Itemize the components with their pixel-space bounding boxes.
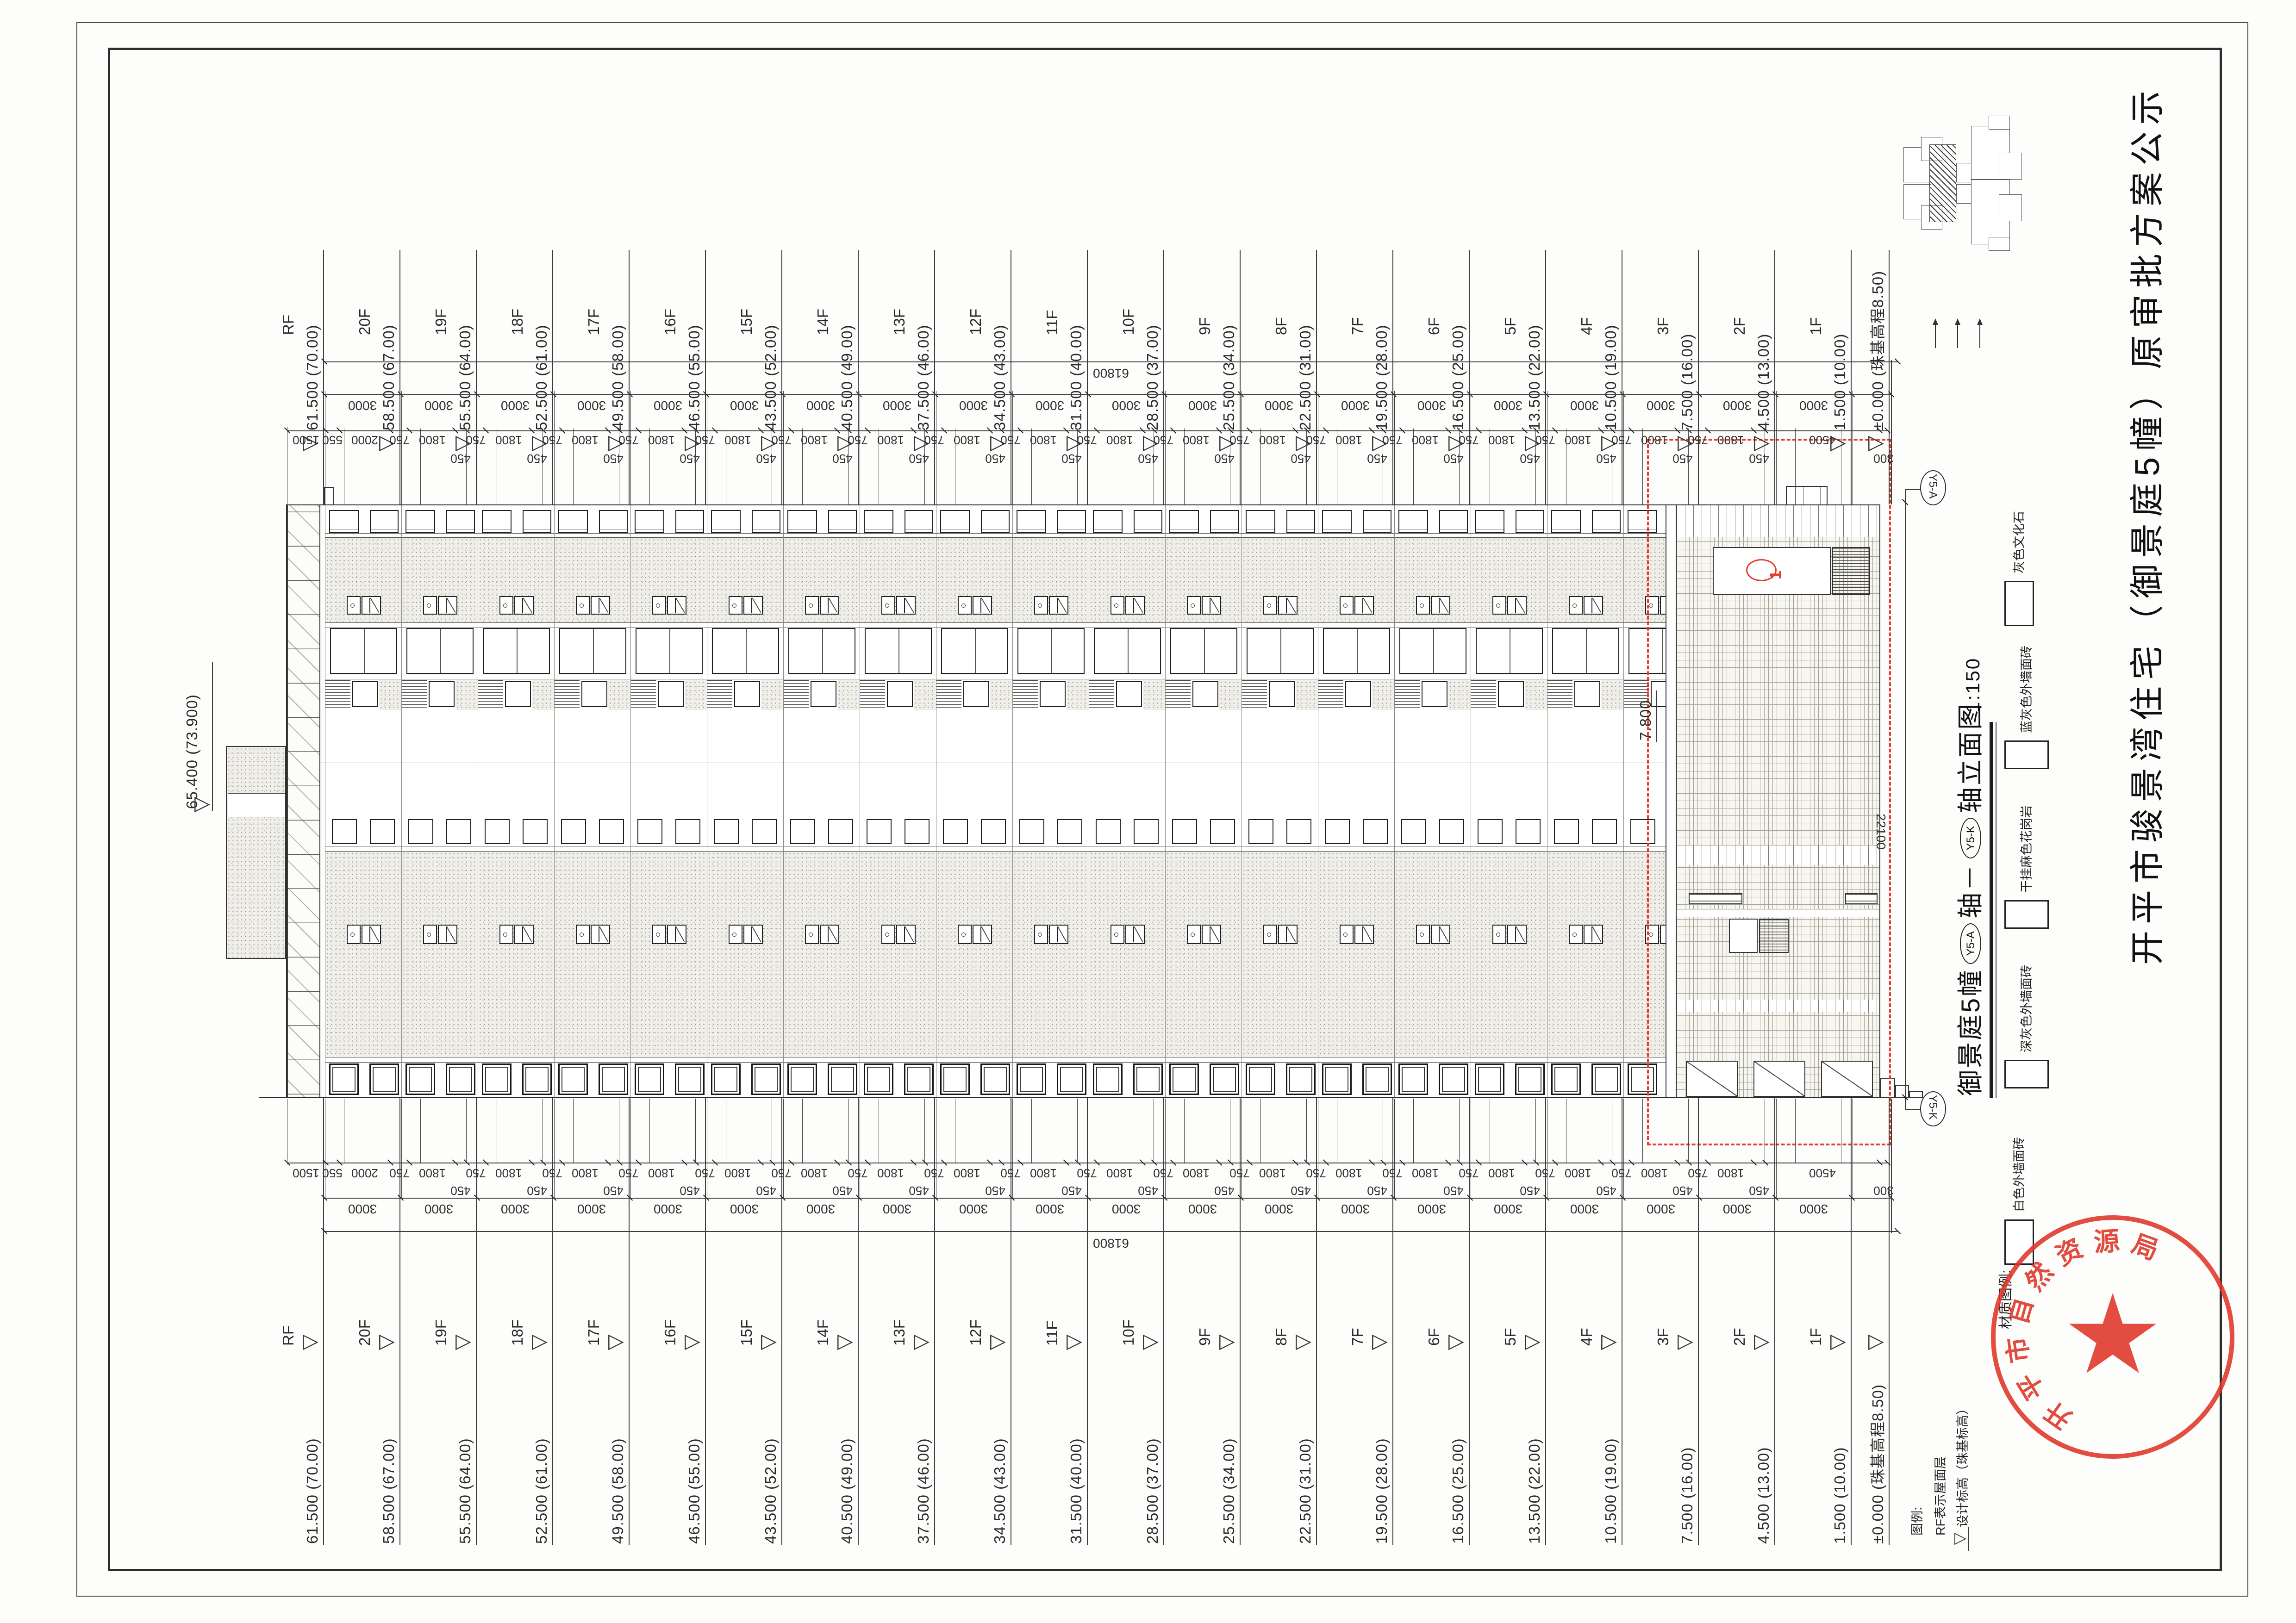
legend-item-label: 干挂麻色花岗岩 bbox=[2020, 805, 2033, 893]
level-triangle-icon: ▷ bbox=[1525, 1331, 1541, 1351]
dim-line bbox=[287, 1163, 1887, 1163]
arrow-shaft bbox=[1935, 324, 1936, 348]
arrow-shaft bbox=[1957, 324, 1958, 348]
dim-ext-line bbox=[1853, 1099, 1853, 1199]
level-elevation-label: 10.500 (19.00) bbox=[1603, 1438, 1619, 1544]
level-triangle-icon: ▷ bbox=[1868, 432, 1884, 453]
dim-text: 300 bbox=[1856, 453, 1911, 465]
dim-ext-line bbox=[1242, 391, 1242, 504]
level-leader-line bbox=[1469, 1098, 1470, 1545]
floor-name-label: 19F bbox=[433, 309, 449, 335]
level-elevation-label: 1.500 (10.00) bbox=[1832, 1447, 1848, 1544]
legend-item-label: 灰色文化石 bbox=[2013, 511, 2026, 573]
dim-ext-line bbox=[1184, 1099, 1185, 1163]
level-triangle-icon: ▷ bbox=[1954, 1530, 1966, 1546]
level-elevation-label: 46.500 (55.00) bbox=[686, 324, 703, 430]
dim-ext-line bbox=[924, 1099, 925, 1163]
level-triangle-icon: ▷ bbox=[1830, 1331, 1846, 1351]
dim-ext-line bbox=[1242, 1099, 1242, 1199]
dim-text: 3000 bbox=[1557, 1202, 1612, 1215]
legend-swatch-hlines bbox=[2004, 900, 2049, 929]
dim-text: 450 bbox=[1273, 1185, 1329, 1197]
level-elevation-label: 43.500 (52.00) bbox=[763, 324, 779, 430]
dim-ext-line bbox=[1623, 1099, 1624, 1199]
floor-name-label: 1F bbox=[1808, 317, 1824, 335]
dim-text: 450 bbox=[1502, 1185, 1558, 1197]
dim-text: 450 bbox=[1044, 453, 1099, 465]
axis-bubble-inline: Y5-K bbox=[1960, 818, 1981, 858]
floor-name-label: 2F bbox=[1732, 317, 1748, 335]
level-triangle-icon: ▷ bbox=[1143, 1331, 1159, 1351]
floor-name-label: 3F bbox=[1655, 1328, 1672, 1346]
floor-name-label: 18F bbox=[510, 1319, 526, 1346]
level-triangle-icon: ▷ bbox=[837, 1331, 853, 1351]
dim-text: 450 bbox=[815, 1185, 870, 1197]
dim-line bbox=[324, 1231, 1897, 1232]
level-elevation-label: 40.500 (49.00) bbox=[839, 1438, 855, 1544]
level-leader-line bbox=[1469, 250, 1470, 504]
dim-text: 1800 bbox=[1703, 1167, 1759, 1179]
level-elevation-label: 13.500 (22.00) bbox=[1527, 1438, 1543, 1544]
roof-machine-room bbox=[226, 746, 286, 959]
dim-ext-line bbox=[344, 1099, 344, 1163]
dim-text: 3000 bbox=[487, 1202, 543, 1215]
dim-text: 450 bbox=[1349, 1185, 1405, 1197]
level-elevation-label: 22.500 (31.00) bbox=[1298, 1438, 1314, 1544]
level-elevation-label: 40.500 (49.00) bbox=[839, 324, 855, 430]
dim-text: 450 bbox=[509, 1185, 565, 1197]
level-elevation-label: 52.500 (61.00) bbox=[534, 1438, 550, 1544]
dim-ext-line bbox=[1108, 429, 1108, 504]
level-leader-line bbox=[705, 1098, 706, 1545]
title-underline-thick bbox=[1990, 722, 1993, 1098]
page-title: 开平市骏景湾住宅（御景庭5幢）原审批方案公示 bbox=[2129, 84, 2165, 965]
dim-text: 450 bbox=[1426, 1185, 1481, 1197]
dim-ext-line bbox=[1413, 429, 1414, 504]
legend-item-label: 深灰色外墙面砖 bbox=[2020, 965, 2033, 1052]
dim-ext-line bbox=[1471, 391, 1471, 504]
floor-name-label: 17F bbox=[586, 309, 602, 335]
dim-ext-line bbox=[344, 429, 344, 504]
dim-text: 3000 bbox=[1098, 1202, 1154, 1215]
dim-text: 450 bbox=[1426, 453, 1481, 465]
dim-ext-line bbox=[287, 1099, 287, 1164]
dim-text: 3000 bbox=[1404, 399, 1460, 412]
level-elevation-label: 52.500 (61.00) bbox=[534, 324, 550, 430]
dim-text: 450 bbox=[738, 1185, 794, 1197]
dim-ext-line bbox=[1413, 1099, 1414, 1163]
dim-text: 3000 bbox=[1328, 399, 1383, 412]
level-elevation-label: 25.500 (34.00) bbox=[1221, 324, 1237, 430]
level-elevation-label: 46.500 (55.00) bbox=[686, 1438, 703, 1544]
level-leader-line bbox=[1240, 250, 1241, 504]
level-leader-line bbox=[1163, 1098, 1164, 1545]
floor-name-label: 7F bbox=[1350, 1328, 1366, 1346]
dim-ext-line bbox=[1459, 1099, 1460, 1163]
dim-ext-line bbox=[630, 1099, 631, 1199]
level-leader-line bbox=[1392, 250, 1393, 504]
floor-name-label: 5F bbox=[1503, 317, 1519, 335]
floor-name-label: 5F bbox=[1503, 1328, 1519, 1346]
axis-bubble-top: Y5-A bbox=[1920, 470, 1946, 505]
dim-ext-line bbox=[1337, 429, 1337, 504]
dim-ext-line bbox=[1642, 1099, 1643, 1163]
entrance-step bbox=[1895, 1085, 1909, 1098]
canopy-level-line bbox=[1656, 690, 1657, 742]
level-triangle-icon: ▷ bbox=[1067, 1331, 1082, 1351]
level-elevation-label: 31.500 (40.00) bbox=[1068, 1438, 1085, 1544]
dim-text: 450 bbox=[586, 453, 641, 465]
drawing-title-project: 御景庭5幢 bbox=[1957, 969, 1984, 1096]
dim-ext-line bbox=[955, 1099, 955, 1163]
level-elevation-label: ±0.000 (珠基高程8.50) bbox=[1870, 271, 1886, 430]
dim-ext-line bbox=[401, 1099, 402, 1199]
dim-text: 450 bbox=[967, 1185, 1023, 1197]
level-elevation-label: 4.500 (13.00) bbox=[1756, 334, 1772, 430]
dim-text: 3000 bbox=[946, 1202, 1001, 1215]
level-elevation-label: 22.500 (31.00) bbox=[1298, 324, 1314, 430]
dim-text: 3000 bbox=[640, 399, 696, 412]
level-elevation-label: 28.500 (37.00) bbox=[1145, 1438, 1161, 1544]
dim-ext-line bbox=[1459, 429, 1460, 504]
floor-name-label: 8F bbox=[1273, 317, 1290, 335]
dim-line bbox=[324, 361, 1897, 362]
level-triangle-icon: ▷ bbox=[990, 1331, 1006, 1351]
floor-name-label: 3F bbox=[1655, 317, 1672, 335]
dim-ext-line bbox=[478, 1099, 478, 1199]
level-leader-line bbox=[705, 250, 706, 504]
level-leader-line bbox=[1392, 1098, 1393, 1545]
dim-text: 450 bbox=[967, 453, 1023, 465]
dim-ext-line bbox=[1001, 1099, 1001, 1163]
dim-ext-line bbox=[1383, 429, 1383, 504]
dim-ext-line bbox=[1612, 1099, 1612, 1163]
bubble-leader bbox=[1905, 489, 1921, 490]
dim-ext-line bbox=[1490, 429, 1490, 504]
level-elevation-label: 49.500 (58.00) bbox=[610, 324, 626, 430]
level-elevation-label: ±0.000 (珠基高程8.50) bbox=[1870, 1384, 1886, 1544]
title-underline-thin bbox=[1996, 722, 1997, 1098]
dim-ext-line bbox=[1566, 1099, 1566, 1163]
dim-text: 450 bbox=[738, 453, 794, 465]
drawing-title-mid: 轴－ bbox=[1957, 863, 1984, 919]
width-dim-line bbox=[1905, 490, 1906, 1110]
dim-text: 3000 bbox=[717, 1202, 772, 1215]
level-elevation-label: 49.500 (58.00) bbox=[610, 1438, 626, 1544]
dim-text: 61800 bbox=[1083, 1237, 1139, 1250]
dim-ext-line bbox=[936, 391, 936, 504]
level-elevation-label: 34.500 (43.00) bbox=[992, 1438, 1008, 1544]
dim-text: 61800 bbox=[1083, 367, 1139, 379]
dim-ext-line bbox=[1719, 429, 1719, 504]
level-leader-line bbox=[1774, 250, 1775, 504]
dim-ext-line bbox=[1077, 1099, 1078, 1163]
arrow-head-icon bbox=[1955, 318, 1960, 325]
dim-text: 3000 bbox=[640, 1202, 696, 1215]
dim-text: 3000 bbox=[869, 1202, 925, 1215]
floor-name-label: 14F bbox=[815, 309, 831, 335]
floor-name-label: 1F bbox=[1808, 1328, 1824, 1346]
floor-name-label: 19F bbox=[433, 1319, 449, 1346]
dim-text: 450 bbox=[433, 1185, 488, 1197]
dim-ext-line bbox=[924, 429, 925, 504]
key-plan-building bbox=[1999, 153, 2022, 180]
revision-number: 1 bbox=[1768, 571, 1784, 579]
dim-ext-line bbox=[573, 429, 574, 504]
floor-name-label: 16F bbox=[662, 309, 679, 335]
level-leader-line bbox=[934, 250, 935, 504]
level-elevation-label: 61.500 (70.00) bbox=[305, 324, 321, 430]
level-elevation-label: 58.500 (67.00) bbox=[381, 1438, 397, 1544]
level-leader-line bbox=[1622, 1098, 1622, 1545]
dim-text: 3000 bbox=[411, 1202, 467, 1215]
key-plan-building bbox=[1989, 116, 2010, 130]
axis-label: Y5-K bbox=[1927, 1095, 1939, 1119]
dim-text: 1800 bbox=[1703, 434, 1759, 446]
level-elevation-label: 43.500 (52.00) bbox=[763, 1438, 779, 1544]
dim-ext-line bbox=[1612, 429, 1612, 504]
dim-ext-line bbox=[1891, 1099, 1892, 1233]
dim-ext-line bbox=[1841, 429, 1841, 504]
level-triangle-icon: ▷ bbox=[685, 1331, 700, 1351]
dim-text: 3000 bbox=[1786, 399, 1841, 412]
seal-character: 市 bbox=[2003, 1334, 2034, 1366]
dim-text: 3000 bbox=[793, 399, 849, 412]
floor-name-label: 10F bbox=[1121, 309, 1137, 335]
dim-ext-line bbox=[1841, 1099, 1841, 1163]
dim-ext-line bbox=[1383, 1099, 1383, 1163]
level-leader-line bbox=[1622, 250, 1622, 504]
entrance-step bbox=[1909, 1091, 1923, 1098]
dim-ext-line bbox=[1795, 1099, 1796, 1163]
arrow-shaft bbox=[1979, 324, 1980, 348]
dim-ext-line bbox=[649, 1099, 650, 1163]
dim-text: 450 bbox=[1578, 453, 1634, 465]
dim-ext-line bbox=[1490, 1099, 1490, 1163]
dim-text: 3000 bbox=[1480, 1202, 1536, 1215]
dim-ext-line bbox=[707, 1099, 707, 1199]
dim-ext-line bbox=[848, 429, 849, 504]
level-elevation-label: 28.500 (37.00) bbox=[1145, 324, 1161, 430]
dim-ext-line bbox=[1700, 1099, 1700, 1199]
dim-ext-line bbox=[573, 1099, 574, 1163]
dim-text: 3000 bbox=[1022, 399, 1078, 412]
axis-label: Y5-A bbox=[1927, 474, 1939, 498]
floor-name-label: 15F bbox=[739, 1319, 755, 1346]
dim-ext-line bbox=[287, 427, 287, 504]
dim-ext-line bbox=[1154, 429, 1154, 504]
legend-swatch-stipple bbox=[2004, 1060, 2049, 1088]
dim-text: 3000 bbox=[869, 399, 925, 412]
level-elevation-label: 19.500 (28.00) bbox=[1374, 324, 1390, 430]
level-leader-line bbox=[629, 250, 630, 504]
level-triangle-icon: ▷ bbox=[194, 793, 210, 814]
note-line: 图例: bbox=[1911, 1507, 1924, 1536]
level-triangle-icon: ▷ bbox=[1678, 1331, 1693, 1351]
dim-text: 450 bbox=[1044, 1185, 1099, 1197]
floor-name-label: 13F bbox=[892, 1319, 908, 1346]
dim-text: 450 bbox=[1655, 1185, 1710, 1197]
seal-character: 源 bbox=[2092, 1227, 2121, 1257]
level-elevation-label: 16.500 (25.00) bbox=[1450, 324, 1466, 430]
level-leader-line bbox=[1698, 250, 1699, 504]
dim-ext-line bbox=[466, 1099, 467, 1163]
dim-text: 3000 bbox=[946, 399, 1001, 412]
dim-ext-line bbox=[1471, 1099, 1471, 1199]
level-leader-line bbox=[1851, 1098, 1852, 1545]
floor-name-label: 8F bbox=[1273, 1328, 1290, 1346]
bubble-leader bbox=[1905, 1109, 1921, 1110]
level-triangle-icon: ▷ bbox=[455, 1331, 471, 1351]
arrow-head-icon bbox=[1977, 318, 1983, 325]
dim-text: 3000 bbox=[1175, 1202, 1230, 1215]
level-elevation-label: 13.500 (22.00) bbox=[1527, 324, 1543, 430]
dim-text: 3000 bbox=[335, 1202, 390, 1215]
level-leader-line bbox=[323, 1098, 324, 1545]
level-triangle-icon: ▷ bbox=[608, 1331, 624, 1351]
dim-text: 3000 bbox=[1098, 399, 1154, 412]
dim-ext-line bbox=[848, 1099, 849, 1163]
dim-text: 450 bbox=[891, 453, 947, 465]
dim-ext-line bbox=[1306, 429, 1307, 504]
dim-ext-line bbox=[1688, 429, 1689, 504]
level-leader-line bbox=[476, 250, 477, 504]
dim-ext-line bbox=[554, 391, 555, 504]
level-leader-line bbox=[1011, 250, 1011, 504]
dim-ext-line bbox=[401, 391, 402, 504]
level-elevation-label: 4.500 (13.00) bbox=[1756, 1447, 1772, 1544]
level-triangle-icon: ▷ bbox=[1601, 1331, 1617, 1351]
legend-swatch-brick bbox=[2004, 581, 2034, 626]
level-leader-line bbox=[858, 1098, 859, 1545]
level-elevation-label: 55.500 (64.00) bbox=[457, 324, 474, 430]
level-elevation-label: 58.500 (67.00) bbox=[381, 324, 397, 430]
dim-text: 3000 bbox=[1022, 1202, 1078, 1215]
dim-ext-line bbox=[1765, 1099, 1765, 1163]
dim-text: 3000 bbox=[1633, 399, 1689, 412]
dim-ext-line bbox=[497, 429, 497, 504]
level-elevation-label: 34.500 (43.00) bbox=[992, 324, 1008, 430]
dim-ext-line bbox=[1394, 391, 1395, 504]
dim-text: 3000 bbox=[564, 1202, 619, 1215]
level-elevation-label: 37.500 (46.00) bbox=[916, 324, 932, 430]
level-triangle-icon: ▷ bbox=[532, 1331, 548, 1351]
dim-text: 3000 bbox=[1557, 399, 1612, 412]
level-leader-line bbox=[1163, 250, 1164, 504]
floor-name-label: 17F bbox=[586, 1319, 602, 1346]
level-leader-line bbox=[399, 1098, 400, 1545]
dim-ext-line bbox=[1566, 429, 1566, 504]
dim-ext-line bbox=[619, 1099, 619, 1163]
level-leader-line bbox=[1545, 1098, 1546, 1545]
note-line: RF表示屋面层 bbox=[1934, 1456, 1947, 1536]
level-triangle-icon: ▷ bbox=[761, 1331, 777, 1351]
dim-text: 3000 bbox=[1480, 399, 1536, 412]
dim-ext-line bbox=[1623, 391, 1624, 504]
dim-ext-line bbox=[1089, 391, 1089, 504]
dim-text: 3000 bbox=[564, 399, 619, 412]
dim-text: 3000 bbox=[717, 399, 772, 412]
dim-ext-line bbox=[1535, 429, 1536, 504]
dim-text: 3000 bbox=[1633, 1202, 1689, 1215]
dim-ext-line bbox=[1547, 1099, 1547, 1199]
dim-ext-line bbox=[772, 429, 772, 504]
level-leader-line bbox=[399, 250, 400, 504]
dim-ext-line bbox=[1318, 1099, 1318, 1199]
level-elevation-label: 7.500 (16.00) bbox=[1679, 334, 1696, 430]
level-leader-line bbox=[1889, 250, 1890, 504]
revision-cloud-box bbox=[1647, 439, 1891, 1145]
dim-text: 450 bbox=[1502, 453, 1558, 465]
floor-name-label: 6F bbox=[1426, 317, 1442, 335]
dim-ext-line bbox=[420, 1099, 421, 1163]
dim-ext-line bbox=[860, 1099, 860, 1199]
dim-ext-line bbox=[649, 429, 650, 504]
dim-ext-line bbox=[1184, 429, 1185, 504]
dim-text: 3000 bbox=[1710, 399, 1765, 412]
dim-ext-line bbox=[325, 391, 325, 504]
dim-ext-line bbox=[802, 429, 803, 504]
dim-ext-line bbox=[726, 429, 726, 504]
level-leader-line bbox=[934, 1098, 935, 1545]
dim-ext-line bbox=[1719, 1099, 1719, 1163]
dim-ext-line bbox=[1012, 391, 1013, 504]
dim-ext-line bbox=[1318, 391, 1318, 504]
floor-name-label: 9F bbox=[1197, 1328, 1213, 1346]
level-elevation-label: 37.500 (46.00) bbox=[916, 1438, 932, 1544]
drawing-title: 御景庭5幢 Y5-A 轴－ Y5-K 轴立面图 bbox=[1957, 702, 1984, 1096]
dim-ext-line bbox=[1700, 391, 1700, 504]
dim-text: 450 bbox=[891, 1185, 947, 1197]
dim-ext-line bbox=[1012, 1099, 1013, 1199]
machine-room-opening bbox=[228, 793, 285, 817]
level-leader-line bbox=[1316, 1098, 1317, 1545]
level-leader-line bbox=[552, 250, 553, 504]
dim-text: 450 bbox=[1578, 1185, 1634, 1197]
dim-ext-line bbox=[1891, 360, 1892, 504]
floor-name-label: 15F bbox=[739, 309, 755, 335]
level-leader-line bbox=[1316, 250, 1317, 504]
level-elevation-label: 61.500 (70.00) bbox=[305, 1438, 321, 1544]
level-leader-line bbox=[1774, 1098, 1775, 1545]
dim-ext-line bbox=[1547, 391, 1547, 504]
dim-ext-line bbox=[497, 1099, 497, 1163]
dim-ext-line bbox=[1031, 429, 1032, 504]
level-leader-line bbox=[1545, 250, 1546, 504]
dim-ext-line bbox=[630, 391, 631, 504]
dim-line bbox=[287, 430, 1887, 431]
key-plan-building bbox=[1999, 194, 2022, 221]
level-elevation-label: 31.500 (40.00) bbox=[1068, 324, 1085, 430]
dim-ext-line bbox=[1765, 429, 1765, 504]
dim-text: 3000 bbox=[1175, 399, 1230, 412]
dim-ext-line bbox=[1337, 1099, 1337, 1163]
floor-name-label: 4F bbox=[1579, 317, 1595, 335]
floor-name-label: 14F bbox=[815, 1319, 831, 1346]
dim-text: 450 bbox=[1273, 453, 1329, 465]
dim-ext-line bbox=[802, 1099, 803, 1163]
floor-name-label: 11F bbox=[1044, 310, 1061, 335]
dim-ext-line bbox=[390, 1099, 390, 1163]
dim-ext-line bbox=[879, 429, 879, 504]
floor-name-label: 18F bbox=[510, 309, 526, 335]
level-leader-line bbox=[629, 1098, 630, 1545]
dim-text: 3000 bbox=[411, 399, 467, 412]
dim-ext-line bbox=[619, 429, 619, 504]
dim-ext-line bbox=[1031, 1099, 1032, 1163]
level-leader-line bbox=[858, 250, 859, 504]
dim-text: 3000 bbox=[487, 399, 543, 412]
